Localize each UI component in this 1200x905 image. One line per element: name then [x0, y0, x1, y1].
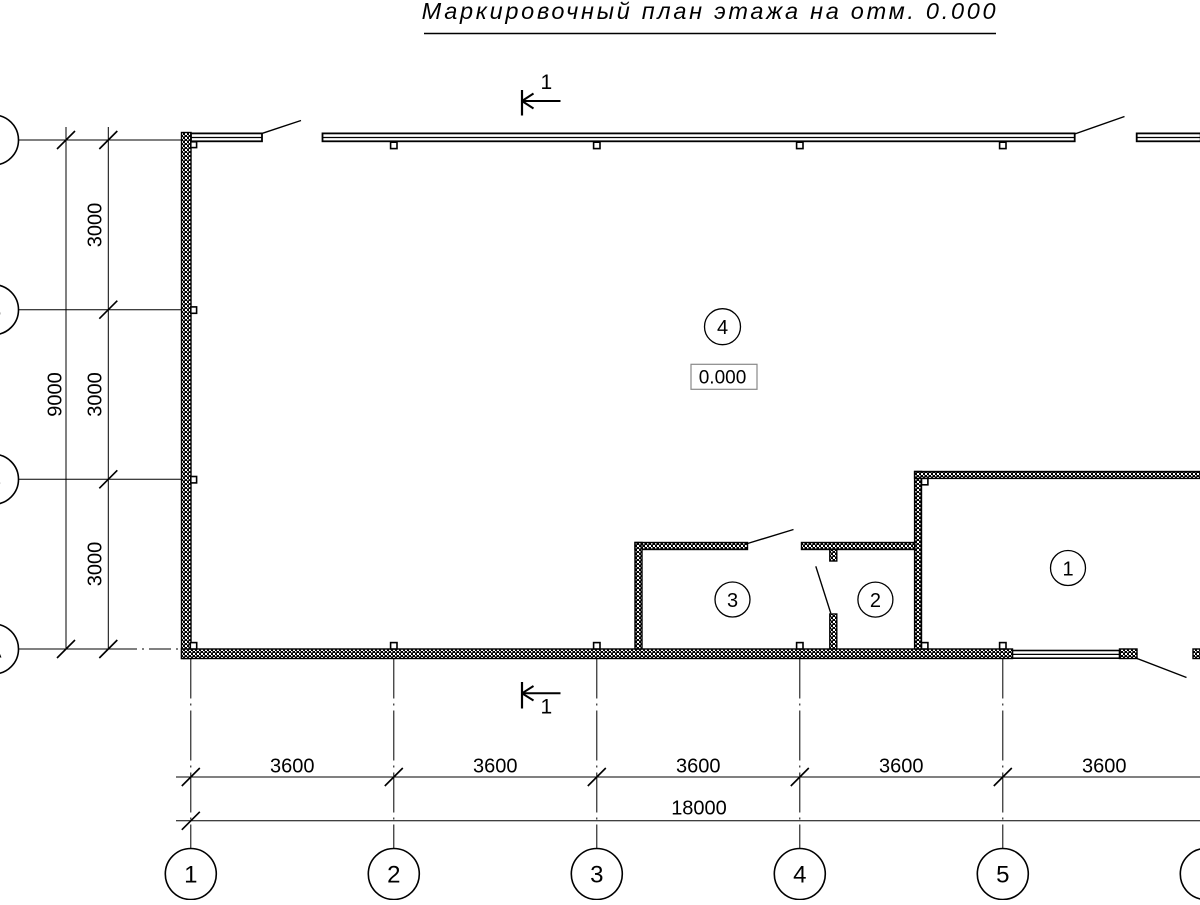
svg-text:9000: 9000	[45, 372, 67, 417]
svg-text:3600: 3600	[879, 756, 924, 778]
svg-text:4: 4	[717, 317, 728, 339]
svg-text:3: 3	[727, 590, 738, 612]
svg-text:3600: 3600	[473, 756, 518, 778]
svg-text:3600: 3600	[1082, 756, 1127, 778]
svg-text:3000: 3000	[85, 203, 107, 248]
svg-text:2: 2	[387, 862, 400, 889]
svg-text:3000: 3000	[85, 372, 107, 417]
svg-text:18000: 18000	[671, 798, 727, 820]
svg-text:3000: 3000	[85, 542, 107, 587]
svg-text:3600: 3600	[270, 756, 315, 778]
svg-text:А: А	[0, 637, 2, 664]
svg-text:В: В	[0, 297, 2, 324]
svg-text:1: 1	[541, 696, 553, 719]
svg-text:Маркировочный план этажа на от: Маркировочный план этажа на отм. 0.000	[422, 0, 999, 24]
svg-text:1: 1	[184, 862, 197, 889]
svg-text:0.000: 0.000	[699, 368, 747, 389]
svg-text:1: 1	[541, 71, 553, 94]
svg-text:4: 4	[793, 862, 806, 889]
svg-text:Б: Б	[0, 467, 1, 494]
svg-text:3600: 3600	[676, 756, 721, 778]
svg-text:5: 5	[996, 862, 1009, 889]
svg-text:3: 3	[590, 862, 603, 889]
svg-text:2: 2	[870, 590, 881, 612]
svg-text:1: 1	[1062, 559, 1073, 581]
